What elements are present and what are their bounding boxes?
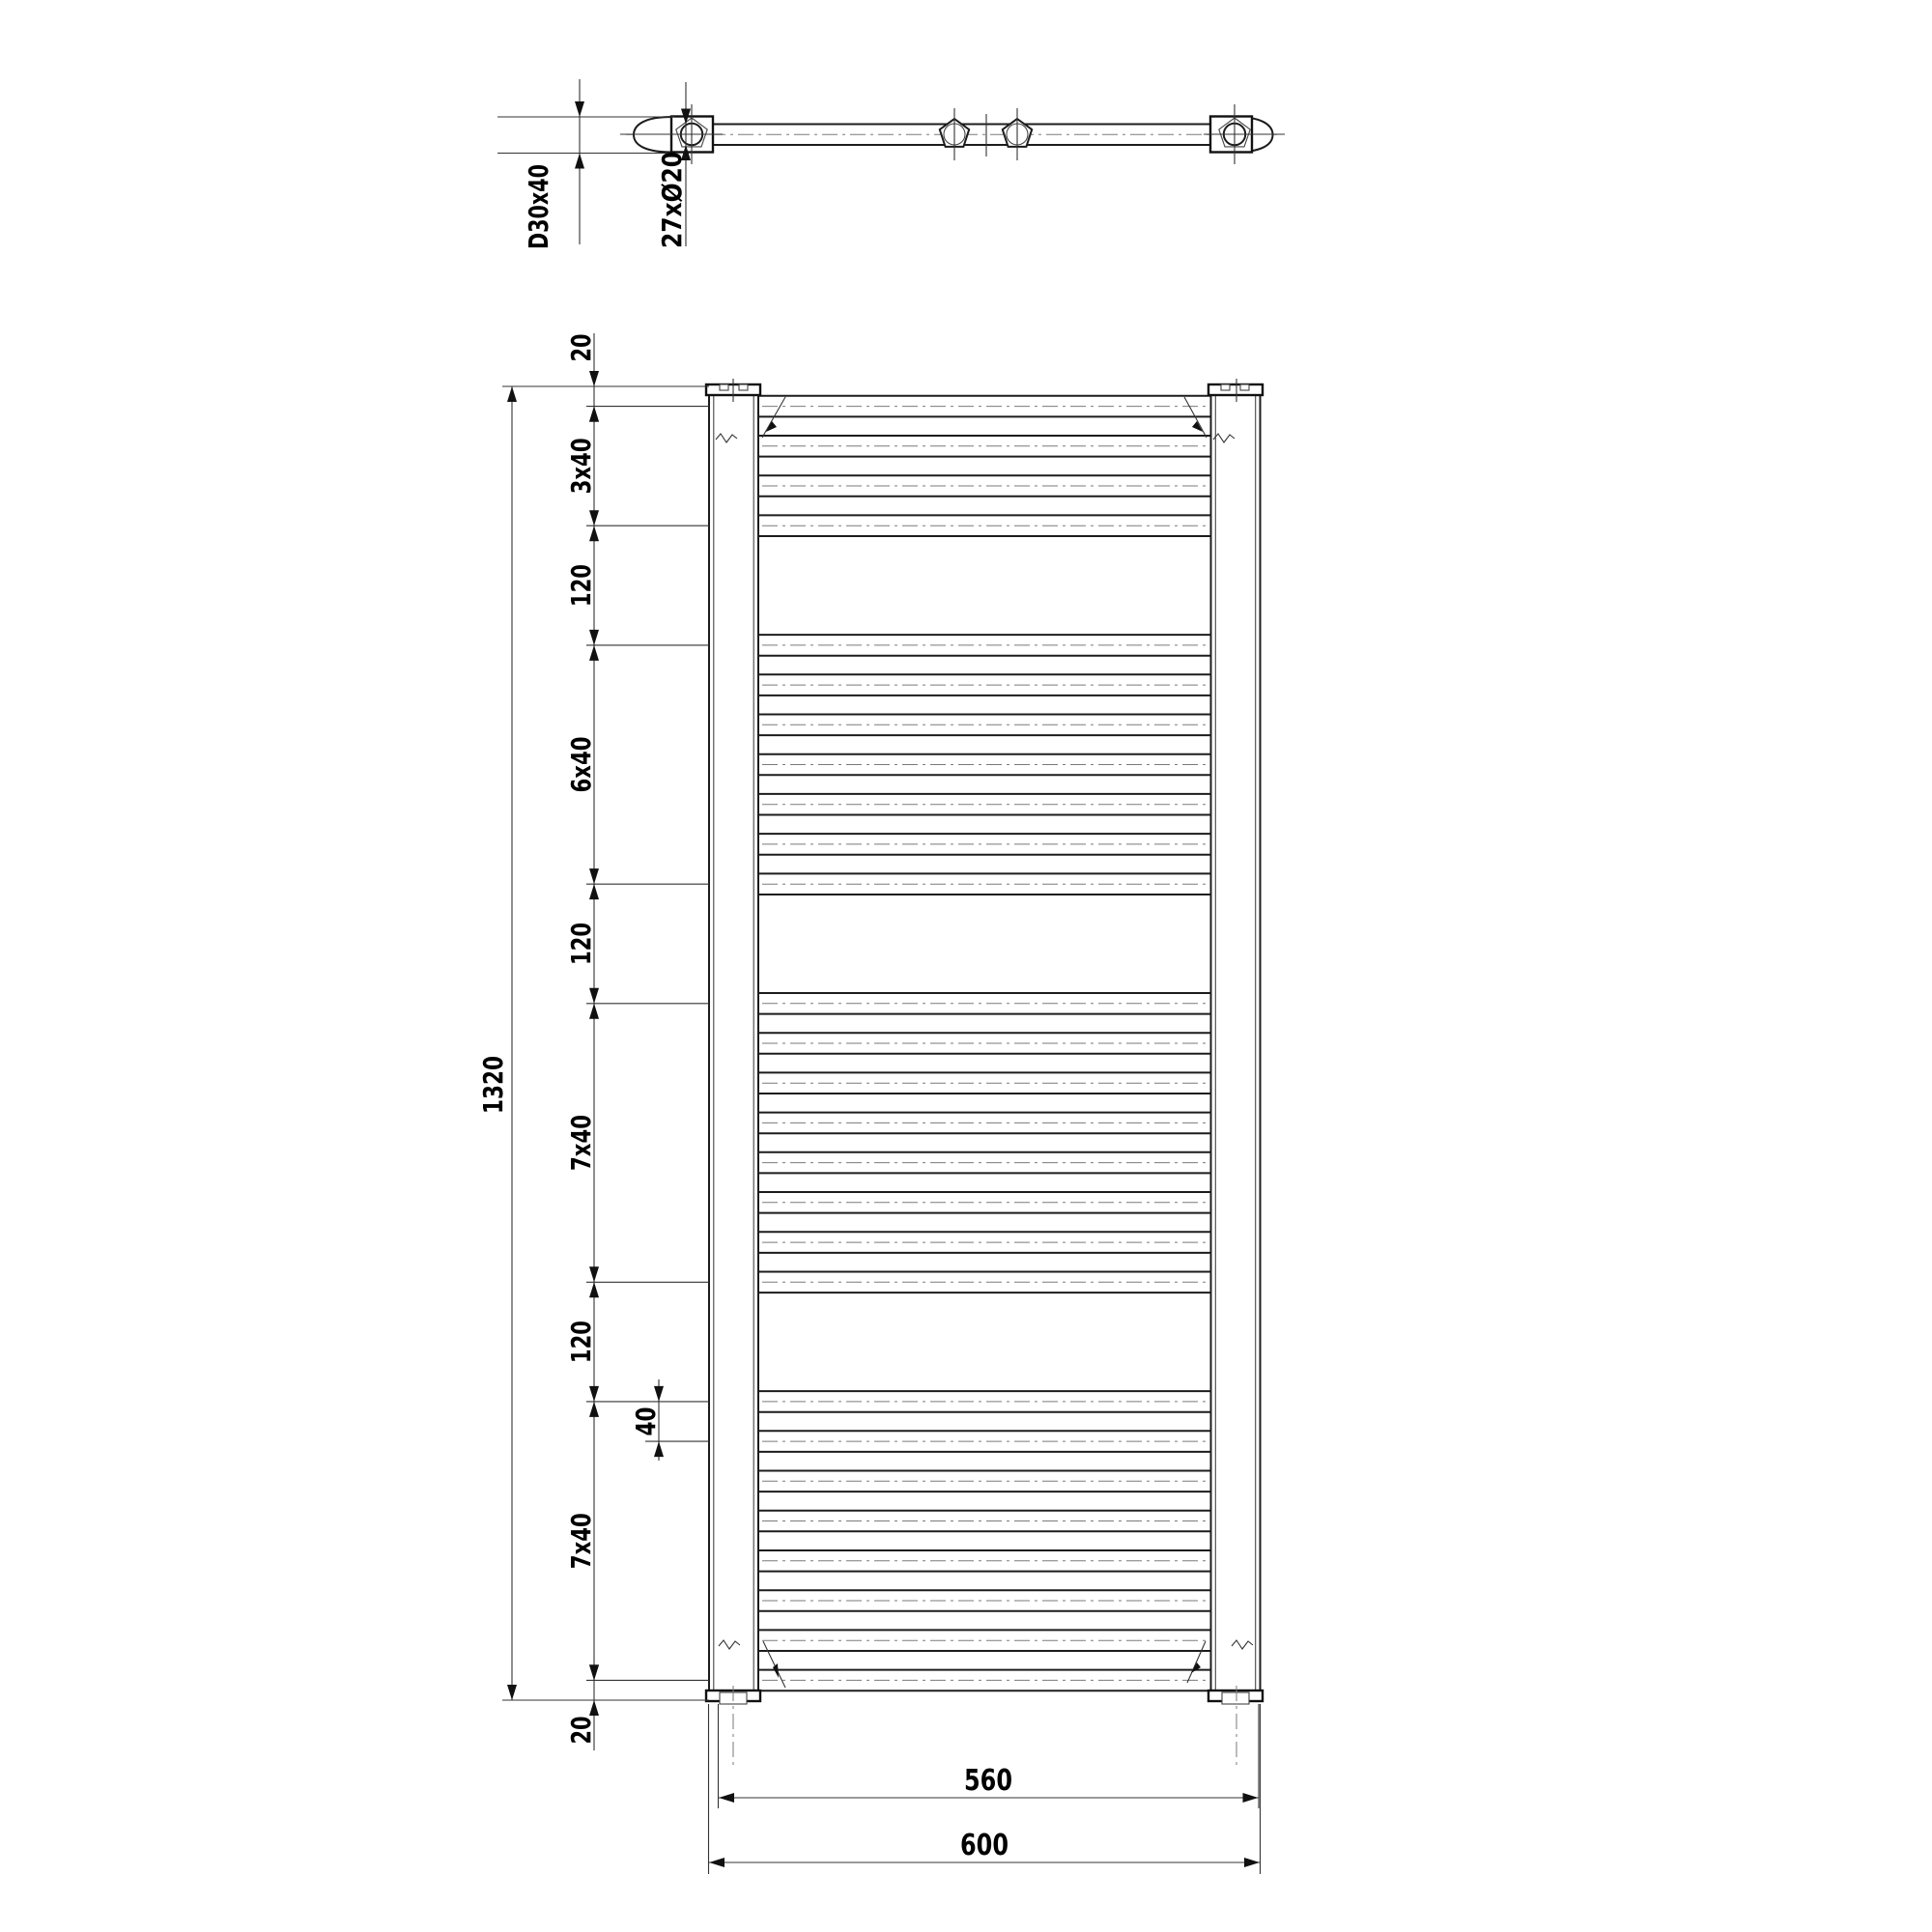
dim-arrow <box>507 386 517 402</box>
dim-label-tubes: 27xØ20 <box>656 152 688 248</box>
dim-arrow <box>589 1386 599 1402</box>
dim-arrow <box>1243 1793 1259 1803</box>
dim-label-rung-spacing: 40 <box>630 1407 662 1436</box>
right-column <box>1208 379 1263 1766</box>
cap-notch <box>1222 1692 1249 1704</box>
weld-leader <box>1187 1641 1206 1683</box>
dim-arrow <box>589 988 599 1004</box>
dim-arrow <box>507 1685 517 1700</box>
top-view: D30x40 27xØ20 <box>497 79 1285 249</box>
dim-arrow <box>589 645 599 661</box>
dim-connection-spacing: 560 <box>719 1704 1260 1808</box>
dim-profile-d30x40: D30x40 <box>497 79 674 249</box>
chain-dim-label: 120 <box>565 1321 597 1363</box>
dim-arrow <box>589 1004 599 1019</box>
break-squiggle <box>1232 1640 1253 1649</box>
dim-label-overall-width: 600 <box>960 1829 1009 1862</box>
chain-dim-label: 7x40 <box>565 1115 597 1171</box>
technical-drawing-canvas: D30x40 27xØ20 <box>0 0 1932 1932</box>
dim-overall-height: 1320 <box>477 386 517 1700</box>
dim-rung-spacing: 40 <box>630 1379 709 1461</box>
dim-arrow <box>589 1282 599 1297</box>
dim-arrow <box>589 884 599 899</box>
weld-leader-arrow <box>1192 421 1203 432</box>
valve-fitting-left <box>940 108 969 160</box>
left-column <box>706 379 760 1766</box>
dim-arrow <box>1244 1858 1260 1867</box>
chain-dim-label: 120 <box>565 564 597 607</box>
weld-leader-arrow <box>766 421 777 432</box>
cap-notch <box>1221 384 1230 390</box>
cap-notch <box>720 384 728 390</box>
dim-label-connection-spacing: 560 <box>964 1764 1012 1798</box>
dim-arrow <box>654 1441 664 1457</box>
dim-arrow <box>589 868 599 884</box>
dim-arrow <box>654 1386 664 1402</box>
front-view <box>706 379 1263 1766</box>
chain-dim-label: 3x40 <box>565 438 597 494</box>
dim-arrow <box>709 1858 724 1867</box>
dim-label-profile: D30x40 <box>523 164 554 249</box>
dim-arrow <box>575 154 584 169</box>
dim-arrow <box>589 1402 599 1417</box>
chain-dim-label: 20 <box>565 1717 597 1745</box>
dim-arrow <box>589 630 599 645</box>
dim-arrow <box>719 1793 734 1803</box>
drawing-page: D30x40 27xØ20 <box>0 0 1932 1932</box>
chain-dim-label: 120 <box>565 923 597 965</box>
dim-arrow <box>589 510 599 526</box>
rung-field <box>758 396 1210 1690</box>
dim-arrow <box>589 526 599 541</box>
break-squiggle <box>1213 434 1235 442</box>
dimensions: 1320 203x401206x401207x401207x4020 40 56… <box>477 333 1261 1874</box>
chain-dim-label: 20 <box>565 334 597 362</box>
dim-arrow <box>575 101 584 117</box>
cap-notch <box>739 384 748 390</box>
dim-label-overall-height: 1320 <box>477 1056 509 1114</box>
chain-dim-label: 7x40 <box>565 1513 597 1569</box>
dim-arrow <box>589 1664 599 1680</box>
column-top-cap <box>1208 384 1263 395</box>
dim-arrow <box>589 371 599 386</box>
dim-arrow <box>589 407 599 422</box>
chain-dim-label: 6x40 <box>565 737 597 793</box>
chain-dimensions: 203x401206x401207x401207x4020 <box>502 333 709 1750</box>
dim-arrow <box>589 1700 599 1716</box>
break-squiggle <box>719 1640 740 1649</box>
break-squiggle <box>716 434 737 442</box>
valve-fitting-right <box>1003 108 1032 160</box>
weld-leaders <box>762 397 1207 1688</box>
dim-tubes-27xd20: 27xØ20 <box>656 82 691 248</box>
dim-arrow <box>589 1266 599 1282</box>
cap-notch <box>1240 384 1249 390</box>
